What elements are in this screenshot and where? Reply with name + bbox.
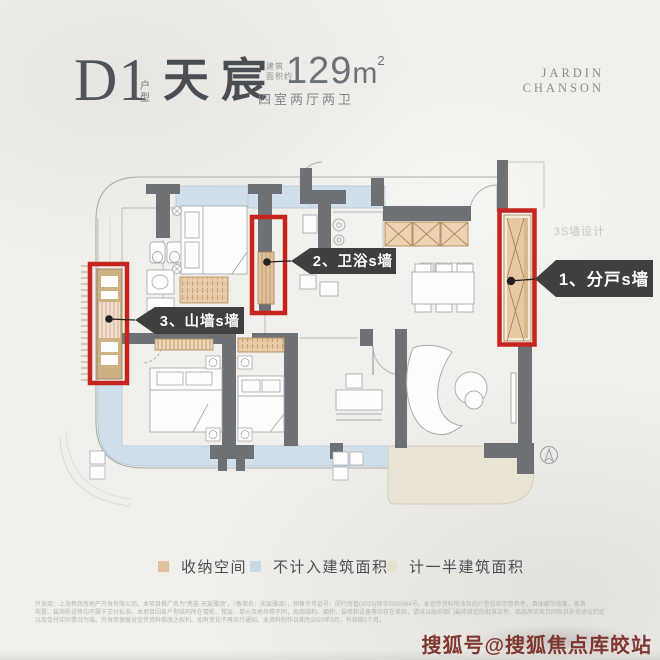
callout-3-label: 3、山墙s墙 bbox=[160, 312, 240, 330]
callout-2-label: 2、卫浴s墙 bbox=[313, 252, 393, 270]
brand-line-1: JARDIN bbox=[500, 66, 604, 81]
brand-line-2: CHANSON bbox=[500, 81, 604, 96]
bedroom1-wardrobe-hatch bbox=[180, 277, 228, 303]
layout-description: 四室两厅两卫 bbox=[258, 89, 354, 108]
legend-item-storage: 收纳空间 bbox=[158, 558, 247, 574]
legend-label: 不计入建筑面积 bbox=[273, 556, 389, 577]
highlight-wall-3-content bbox=[97, 269, 122, 379]
dining-table bbox=[412, 264, 474, 312]
disclaimer-line: 布置、装饰陈设等均不属于交付标准。本项目因各户型结构所在楼栋、楼层、单元及地块等… bbox=[35, 609, 627, 617]
poster-canvas: 1、分戸s墙 2、卫浴s墙 3、山墙s墙 · 3S墙设计 D1 户型 天宸 建筑… bbox=[0, 0, 660, 660]
bedroom3-bed bbox=[238, 376, 284, 432]
highlight-wall-1-content bbox=[504, 215, 531, 341]
study-desk bbox=[336, 374, 382, 420]
compass-icon bbox=[541, 447, 558, 464]
kitchen-stove bbox=[333, 219, 345, 245]
storage-swatch bbox=[158, 561, 169, 572]
callout-1-label: 1、分戸s墙 bbox=[559, 269, 649, 289]
bottom-edge-shade bbox=[0, 650, 660, 660]
bedroom1-bed bbox=[173, 206, 248, 274]
callout-1: 1、分戸s墙 bbox=[535, 260, 653, 297]
kitchen-cabinets bbox=[385, 222, 468, 246]
plan-code-suffix: 户型 bbox=[140, 81, 152, 105]
bedroom2-bed bbox=[150, 368, 222, 432]
excluded-area-swatch bbox=[250, 561, 261, 572]
area-value: 129m2 bbox=[286, 50, 385, 92]
legend-label: 收纳空间 bbox=[181, 556, 247, 577]
callout-2: 2、卫浴s墙 bbox=[291, 248, 396, 274]
legend-label: 计一半建筑面积 bbox=[409, 556, 525, 577]
legend-item-excluded-area: 不计入建筑面积 bbox=[250, 558, 389, 574]
disclaimer-line: 开发商：上海隽辉房地产开发有限公司。本项目推广名为“隽荟·天宸雅颂”，（备案名：… bbox=[35, 601, 627, 609]
design-watermark-note: · 3S墙设计 bbox=[545, 224, 605, 238]
plan-code: D1 bbox=[74, 50, 149, 110]
brand-logo: JARDIN CHANSON bbox=[500, 66, 604, 96]
legend-item-half-area: 计一半建筑面积 bbox=[386, 558, 525, 574]
half-area-swatch bbox=[386, 561, 397, 572]
living-room-sofa bbox=[407, 345, 516, 434]
callout-3: 3、山墙s墙 bbox=[135, 307, 244, 334]
